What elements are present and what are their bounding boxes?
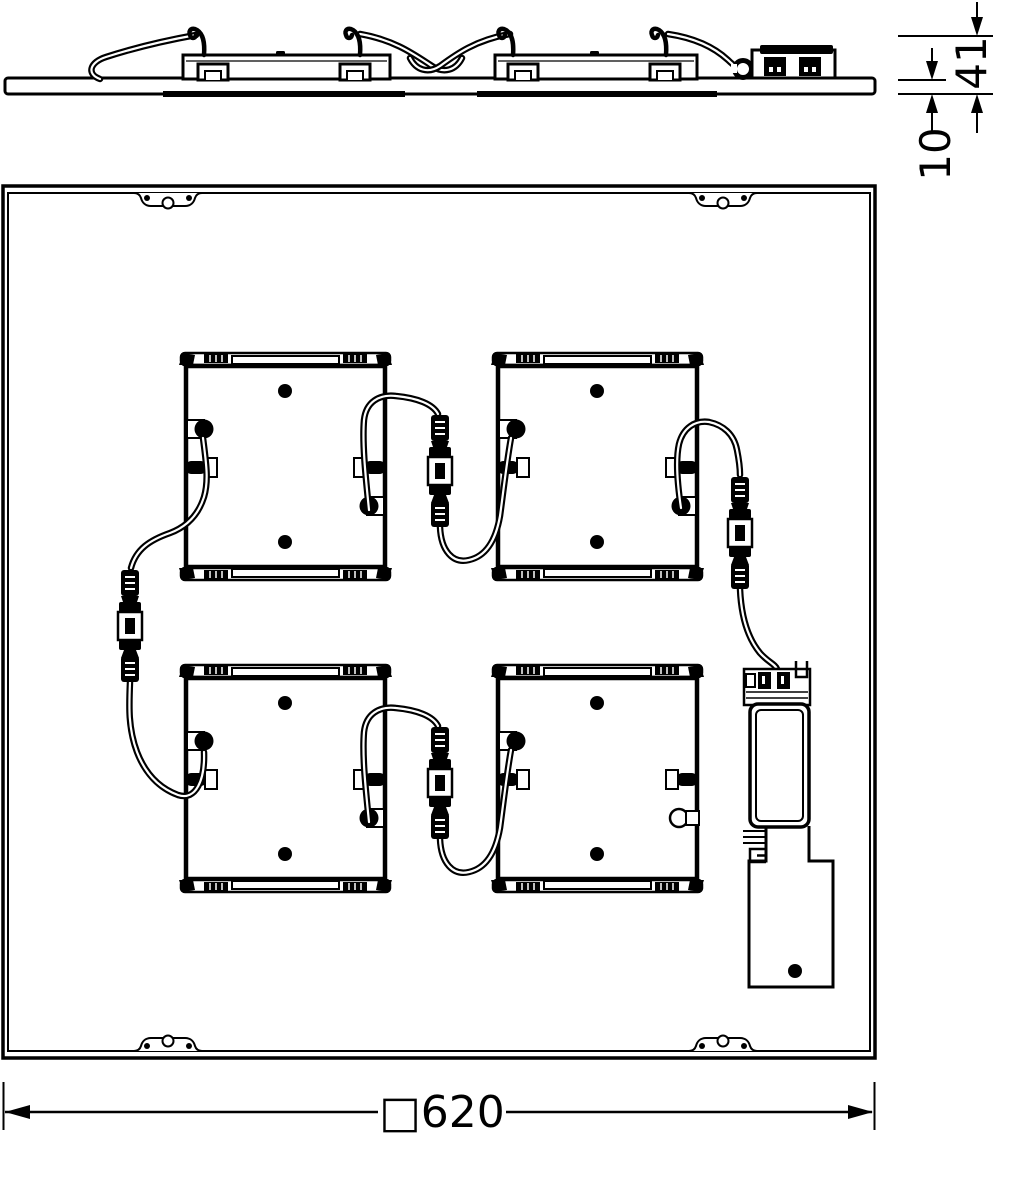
inline-connector-top — [428, 415, 452, 527]
driver-mounting-hole — [788, 964, 802, 978]
dimension-label-620: □620 — [379, 1087, 505, 1138]
arrowhead-right — [848, 1105, 873, 1119]
led-module-bottom-left — [179, 665, 392, 892]
panel-board-side — [5, 78, 875, 94]
diffuser-strip — [163, 91, 405, 97]
arrowhead-up — [971, 94, 983, 113]
plan-view — [3, 186, 875, 1058]
led-module-top-right — [491, 353, 704, 580]
dimension-outer-square: □620 — [4, 1082, 875, 1138]
module-socket-empty-bottom-right — [670, 809, 699, 827]
inline-connector-left — [118, 570, 142, 682]
inline-connector-right — [728, 477, 752, 589]
side-view — [5, 29, 875, 97]
dimension-label-41: 41 — [947, 36, 996, 89]
inline-connector-bottom — [428, 727, 452, 839]
dimension-total-height: 41 — [898, 2, 996, 133]
led-module-top-left — [179, 353, 392, 580]
round-connector-side — [731, 61, 752, 78]
cable-lug — [651, 29, 666, 55]
arrowhead-up — [926, 94, 938, 113]
terminal-block-side — [752, 45, 835, 78]
driver-body — [750, 704, 809, 827]
technical-drawing-page: 41 10 — [0, 0, 1021, 1200]
cable-lug — [345, 29, 360, 55]
arrowhead-left — [5, 1105, 30, 1119]
arrowhead-down — [926, 61, 938, 80]
led-module-bottom-right — [491, 665, 704, 892]
arrowhead-down — [971, 17, 983, 36]
diffuser-strip — [477, 91, 717, 97]
dimension-label-10: 10 — [911, 127, 960, 180]
luminaire-dimension-drawing: 41 10 — [0, 0, 1021, 1200]
